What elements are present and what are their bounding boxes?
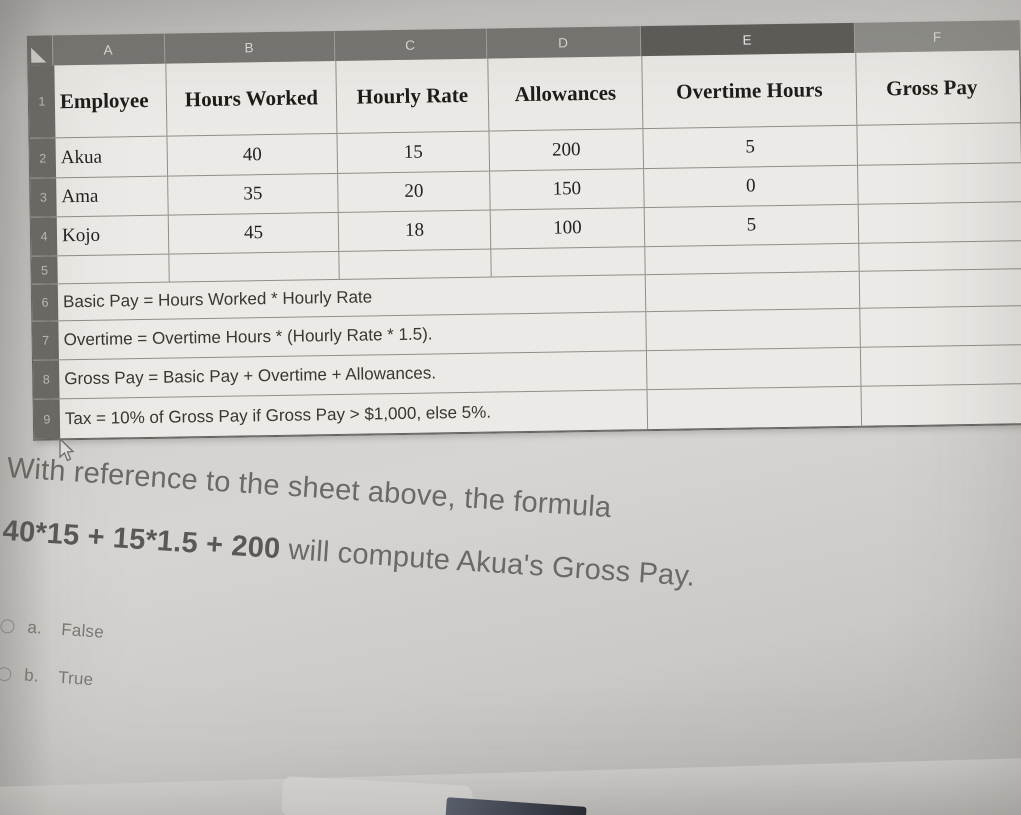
empty-cell [647,348,862,389]
cell-hours-worked: 35 [168,174,339,215]
spreadsheet: A B C D E F 1 Employee Hours Worked Hour… [27,20,1021,441]
cell-allowances: 100 [491,208,646,248]
empty-cell [57,255,169,284]
option-b-label[interactable]: True [57,668,93,690]
cell-hourly-rate: 18 [339,211,492,251]
note-tax: Tax = 10% of Gross Pay if Gross Pay > $1… [60,390,649,438]
empty-cell [169,252,339,282]
cell-overtime-hours: 0 [644,166,859,207]
empty-cell [860,269,1011,307]
column-header-c: C [335,29,487,61]
cell-allowances: 200 [489,129,644,170]
sheet-grid: 1 Employee Hours Worked Hourly Rate Allo… [27,50,1021,441]
question-text-rest: will compute Akua's Gross Pay. [279,533,696,592]
cell-hourly-rate: 15 [337,132,490,173]
option-b-radio[interactable] [0,667,12,682]
header-cell-hourly-rate: Hourly Rate [336,59,489,133]
empty-cell [648,387,863,429]
column-header-b: B [165,31,335,64]
answer-option-b[interactable]: b. True [0,664,94,691]
cell-overtime-hours: 5 [645,205,860,246]
empty-cell [859,241,1009,270]
header-cell-employee: Employee [54,64,167,138]
formula-text: 40*15 + 15*1.5 + 200 [2,515,282,565]
row-header-8: 8 [33,360,60,398]
cell-gross-pay [857,123,1008,164]
row-header-3: 3 [30,178,57,216]
answer-option-a[interactable]: a. False [0,616,104,643]
option-b-letter: b. [24,666,49,688]
empty-cell [860,306,1011,346]
empty-cell [646,272,861,311]
cell-hours-worked: 45 [169,213,340,254]
header-cell-allowances: Allowances [488,56,643,130]
question-block: With reference to the sheet above, the f… [0,452,1011,798]
empty-cell [339,250,491,279]
cell-employee: Akua [55,137,168,178]
cell-employee: Ama [56,177,169,217]
cell-hourly-rate: 20 [338,172,491,212]
column-header-d: D [487,26,641,58]
header-cell-gross-pay: Gross Pay [856,50,1007,124]
column-header-f: F [855,20,1020,53]
column-header-a: A [53,34,165,66]
quiz-page-photo: A B C D E F 1 Employee Hours Worked Hour… [0,0,1021,815]
option-a-label[interactable]: False [61,620,105,643]
empty-cell [646,309,861,350]
option-a-letter: a. [27,618,52,640]
cell-overtime-hours: 5 [643,126,858,168]
select-all-triangle-icon [31,48,46,63]
cell-gross-pay [859,202,1010,242]
cell-gross-pay [858,163,1009,203]
row-header-9: 9 [34,399,61,438]
empty-cell [861,345,1012,385]
row-header-1: 1 [28,65,55,137]
cell-allowances: 150 [490,169,645,209]
row-header-4: 4 [31,217,58,255]
option-a-radio[interactable] [0,619,15,634]
row-header-7: 7 [32,321,59,359]
empty-cell [491,247,645,276]
header-cell-overtime-hours: Overtime Hours [642,53,857,128]
select-all-corner [27,35,53,65]
row-header-6: 6 [32,284,59,320]
row-header-5: 5 [31,256,57,283]
empty-cell [645,244,859,274]
empty-cell [861,384,1012,425]
cell-employee: Kojo [57,216,170,256]
cell-hours-worked: 40 [167,134,338,176]
row-header-2: 2 [29,138,56,177]
column-header-e: E [641,23,855,56]
header-cell-hours-worked: Hours Worked [166,61,337,136]
